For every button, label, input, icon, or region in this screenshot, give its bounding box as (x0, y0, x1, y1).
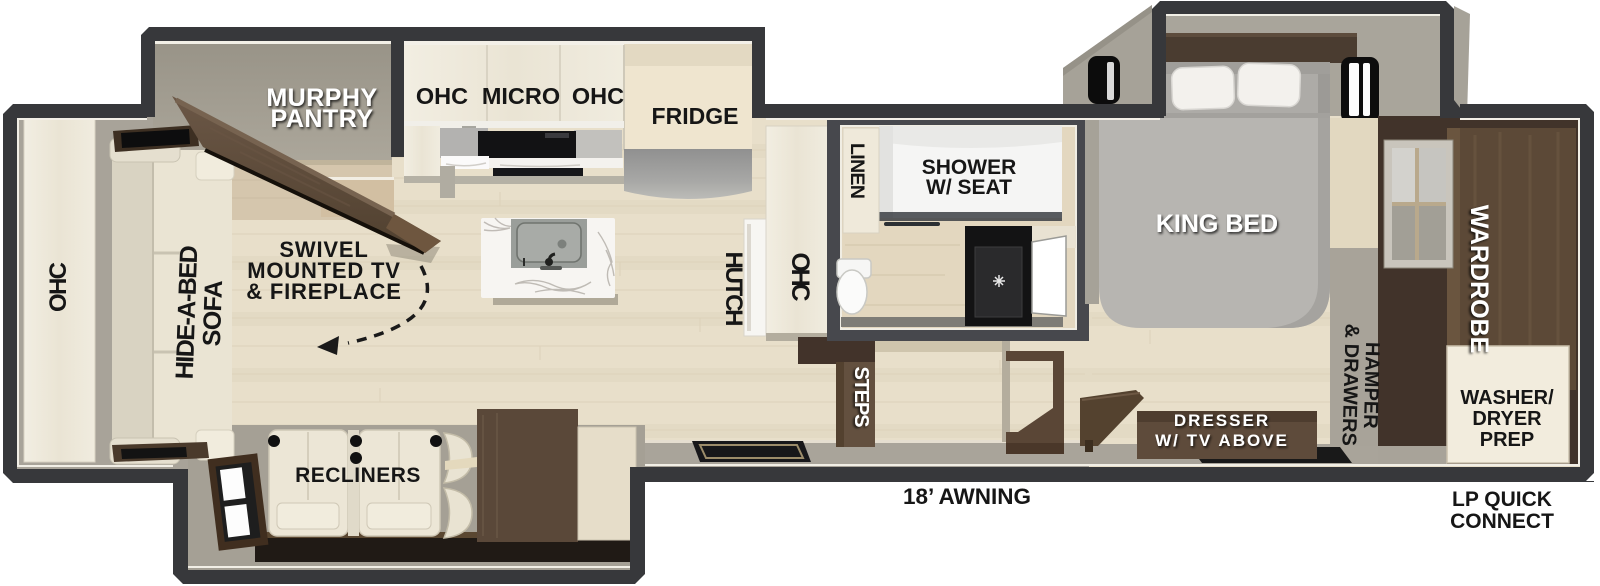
svg-text:PANTRY: PANTRY (271, 105, 374, 133)
svg-text:OHC: OHC (416, 83, 468, 109)
svg-text:HAMPER& DRAWERS: HAMPER& DRAWERS (1337, 323, 1383, 446)
svg-text:WARDROBE: WARDROBE (1465, 205, 1493, 354)
svg-text:KING BED: KING BED (1156, 210, 1278, 238)
svg-text:LP QUICK: LP QUICK (1452, 488, 1552, 511)
svg-text:LINEN: LINEN (846, 143, 868, 199)
svg-text:18’ AWNING: 18’ AWNING (903, 484, 1031, 509)
svg-text:OHC: OHC (45, 262, 72, 312)
svg-text:OHC: OHC (786, 253, 814, 302)
svg-text:MICRO: MICRO (482, 83, 560, 109)
svg-text:& FIREPLACE: & FIREPLACE (246, 279, 401, 304)
svg-text:DRESSER: DRESSER (1174, 411, 1270, 430)
svg-text:PREP: PREP (1480, 429, 1534, 451)
svg-text:HUTCH: HUTCH (720, 252, 747, 327)
svg-text:FRIDGE: FRIDGE (652, 103, 739, 129)
svg-text:W/ SEAT: W/ SEAT (926, 176, 1012, 199)
svg-text:CONNECT: CONNECT (1450, 510, 1554, 533)
svg-text:STEPS: STEPS (850, 367, 872, 428)
svg-text:RECLINERS: RECLINERS (295, 464, 421, 487)
svg-text:W/ TV ABOVE: W/ TV ABOVE (1155, 431, 1289, 450)
svg-text:DRYER: DRYER (1472, 408, 1542, 430)
svg-text:OHC: OHC (572, 83, 624, 109)
svg-text:WASHER/: WASHER/ (1460, 387, 1554, 409)
